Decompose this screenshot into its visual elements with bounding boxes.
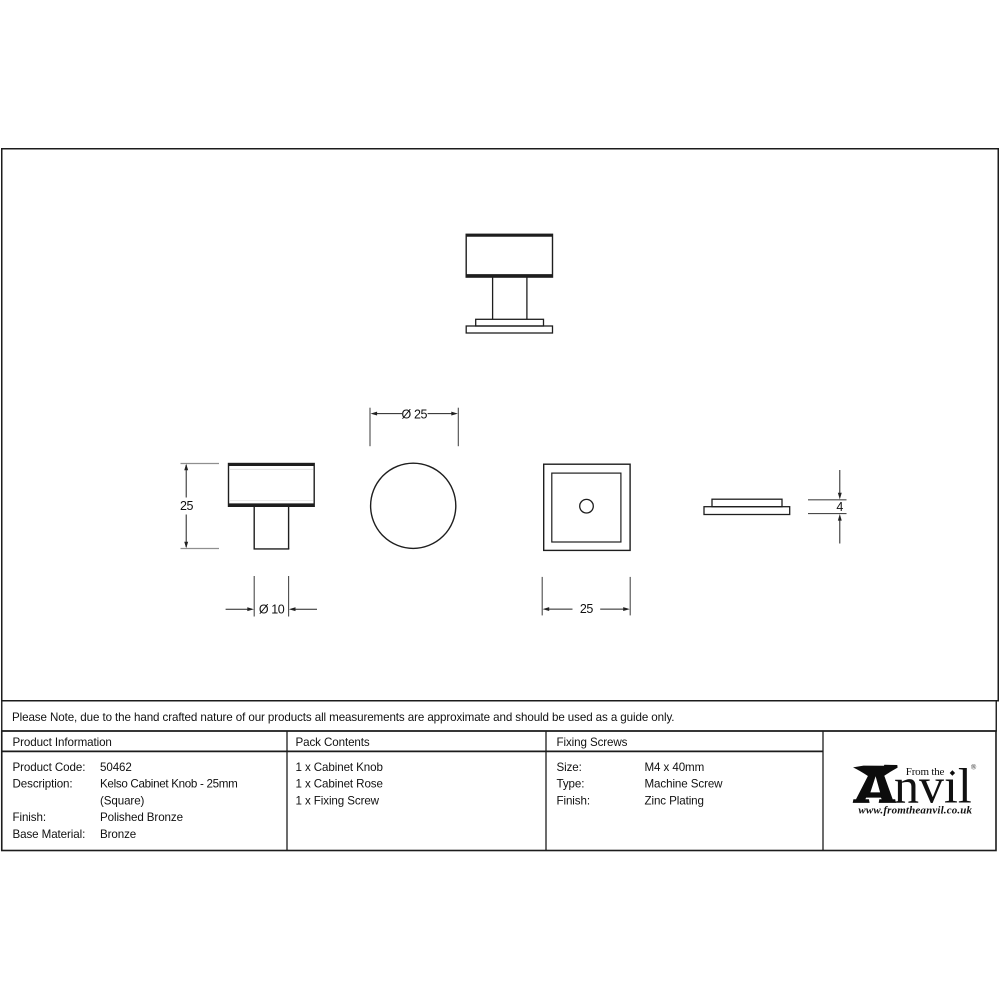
svg-text:M4 x 40mm: M4 x 40mm (645, 761, 705, 774)
svg-text:1 x Fixing Screw: 1 x Fixing Screw (296, 794, 380, 807)
svg-text:Product Code:: Product Code: (13, 761, 86, 774)
svg-text:Pack Contents: Pack Contents (296, 736, 370, 749)
svg-text:Machine Screw: Machine Screw (645, 778, 724, 791)
svg-text:Type:: Type: (557, 778, 585, 791)
svg-text:Size:: Size: (557, 761, 582, 774)
svg-text:Fixing Screws: Fixing Screws (557, 736, 628, 749)
svg-text:Finish:: Finish: (13, 811, 46, 824)
svg-text:Zinc Plating: Zinc Plating (645, 794, 704, 807)
svg-text:®: ® (971, 762, 977, 771)
svg-text:Base Material:: Base Material: (13, 828, 86, 841)
svg-text:Please Note, due to the hand c: Please Note, due to the hand crafted nat… (12, 711, 674, 724)
svg-text:Kelso Cabinet Knob - 25mm: Kelso Cabinet Knob - 25mm (100, 778, 238, 791)
svg-text:50462: 50462 (100, 761, 132, 774)
svg-text:1 x Cabinet Rose: 1 x Cabinet Rose (296, 778, 383, 791)
svg-text:Bronze: Bronze (100, 828, 136, 841)
svg-text:Ø 25: Ø 25 (402, 407, 428, 421)
svg-text:25: 25 (580, 602, 594, 616)
svg-text:Finish:: Finish: (557, 794, 590, 807)
svg-text:Polished Bronze: Polished Bronze (100, 811, 183, 824)
svg-text:4: 4 (836, 500, 843, 514)
svg-text:(Square): (Square) (100, 794, 145, 807)
svg-text:Description:: Description: (13, 778, 73, 791)
svg-text:www.fromtheanvil.co.uk: www.fromtheanvil.co.uk (858, 805, 972, 817)
svg-text:1 x Cabinet Knob: 1 x Cabinet Knob (296, 761, 383, 774)
svg-text:Ø 10: Ø 10 (259, 602, 285, 616)
svg-text:Product Information: Product Information (13, 736, 112, 749)
svg-text:25: 25 (180, 499, 194, 513)
